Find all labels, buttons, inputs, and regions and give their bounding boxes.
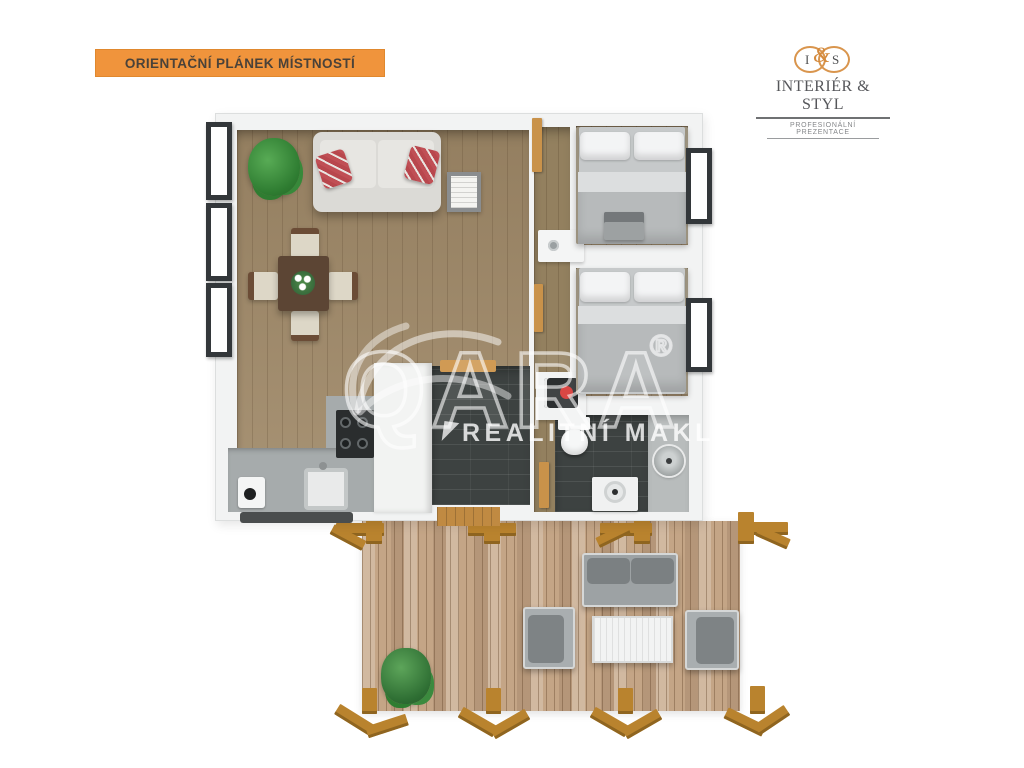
plan-title-badge: ORIENTAČNÍ PLÁNEK MÍSTNOSTÍ — [95, 49, 385, 77]
outdoor-back-cushion — [631, 558, 674, 584]
kitchen-island — [374, 363, 432, 513]
door-mat — [240, 512, 353, 523]
interier-styl-logo: I & S INTERIÉR & STYL PROFESIONÁLNÍ PREZ… — [756, 42, 890, 139]
wood-bench — [440, 360, 496, 372]
stove-burner — [357, 417, 368, 428]
washing-machine-knob — [612, 489, 618, 495]
boiler-indicator — [560, 386, 573, 399]
outdoor-armchair-cushion — [528, 615, 564, 663]
logo-name: INTERIÉR & STYL — [756, 78, 890, 119]
interior-door — [534, 284, 543, 332]
post-brace — [365, 714, 409, 738]
logo-initial-right: S — [832, 52, 839, 68]
sofa — [313, 132, 441, 212]
kitchen-sink — [304, 468, 348, 510]
toilet-bowl — [561, 429, 588, 455]
sink-drain — [666, 458, 672, 464]
logo-tagline: PROFESIONÁLNÍ PREZENTACE — [767, 121, 879, 139]
casement-window — [686, 148, 712, 224]
casement-window — [206, 283, 232, 357]
outdoor-armchair-cushion — [696, 617, 734, 664]
logo-monogram-icon: I & S — [756, 42, 890, 78]
casement-window — [686, 298, 712, 372]
potted-plant — [248, 138, 300, 196]
outdoor-sofa — [582, 553, 678, 607]
dining-chair — [291, 311, 319, 341]
interior-door — [532, 118, 542, 172]
kitchen-faucet — [319, 462, 327, 470]
logo-ampersand: & — [813, 42, 830, 68]
coffee-machine-dial — [244, 488, 256, 500]
dining-chair — [248, 272, 278, 300]
stove-burner — [357, 438, 368, 449]
bed-pillow — [580, 272, 630, 302]
bed-pillow — [580, 132, 630, 160]
casement-window — [206, 122, 232, 200]
picture-frame — [447, 172, 481, 212]
post-block — [618, 688, 633, 714]
bed-blanket — [578, 324, 686, 392]
deck-door-threshold — [437, 507, 500, 526]
throw-pillow — [403, 145, 440, 185]
bathroom-door — [539, 462, 549, 508]
casement-window — [206, 203, 232, 281]
stove-burner — [340, 417, 351, 428]
stove-burner — [340, 438, 351, 449]
laptop — [604, 212, 644, 240]
bed-pillow — [634, 132, 684, 160]
flower-vase — [291, 271, 315, 295]
post-block — [362, 688, 377, 714]
outdoor-back-cushion — [587, 558, 630, 584]
dining-chair — [328, 272, 358, 300]
post-block — [738, 512, 754, 544]
floor-plan-page: ORIENTAČNÍ PLÁNEK MÍSTNOSTÍ I & S INTERI… — [0, 0, 1024, 768]
vanity-faucet — [548, 240, 559, 251]
post-block — [486, 688, 501, 714]
deck-potted-plant — [381, 648, 431, 704]
outdoor-coffee-table — [592, 616, 673, 663]
logo-initial-left: I — [805, 52, 809, 68]
kitchen-annex-floor — [432, 366, 530, 505]
gas-stove — [336, 410, 374, 458]
bed-sheet-fold — [578, 306, 686, 324]
bed-sheet-fold — [578, 172, 686, 192]
bed-pillow — [634, 272, 684, 302]
dining-chair — [291, 228, 319, 258]
post-block — [750, 686, 765, 714]
